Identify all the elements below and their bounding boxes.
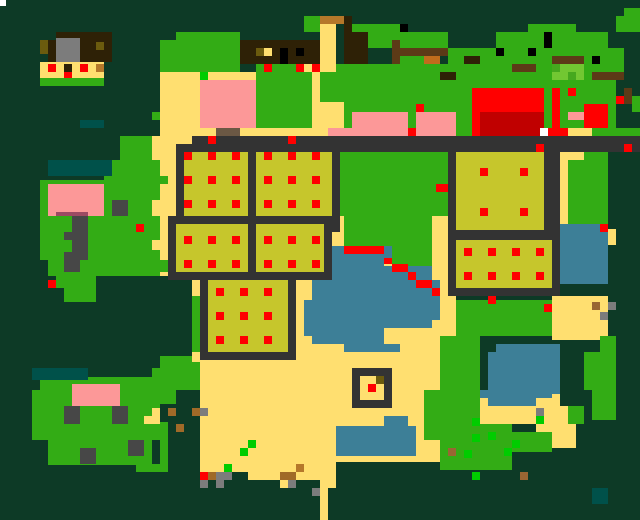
beach-central: [200, 352, 320, 472]
farm-plot-e-crop-dot: [240, 288, 248, 296]
islet-door: [64, 64, 72, 72]
grass-top-right: [496, 32, 608, 48]
wood-block: [440, 72, 456, 80]
driftwood: [592, 302, 600, 310]
farm-plot-c-crop-dot: [232, 236, 240, 244]
tree-trunk: [496, 48, 504, 56]
island-map[interactable]: [0, 0, 640, 520]
farm-plot-b-crop-dot: [312, 152, 320, 160]
farm-plot-c-crop-dot: [208, 236, 216, 244]
sand-nw: [160, 72, 200, 136]
farm-plot-c-crop-dot: [184, 236, 192, 244]
wood-fence: [512, 64, 536, 72]
farm-plot-r2-crop-dot: [488, 248, 496, 256]
pink-building-n1: [352, 112, 408, 136]
islet-house-wall: [40, 40, 48, 54]
beach-flower: [200, 472, 208, 480]
red-market-roof-dark: [480, 112, 544, 128]
totem-base: [64, 260, 80, 272]
lake-south: [384, 416, 408, 426]
farm-plot-e-crop-dot: [264, 312, 272, 320]
lake-red-shore: [600, 224, 608, 232]
farm-plot-e-crop-dot: [216, 312, 224, 320]
beach-plant: [464, 450, 472, 458]
beach-plant: [472, 472, 480, 480]
grass-east-blob: [584, 352, 616, 390]
red-stand-column: [472, 88, 480, 128]
stone: [312, 488, 320, 496]
farm-plot-r2-crop-dot: [488, 272, 496, 280]
farm-plot-e-crop-dot: [216, 336, 224, 344]
building-door-mat: [264, 64, 272, 72]
grass-below-plots: [472, 300, 552, 336]
lake-central: [432, 280, 440, 320]
grass-pixel: [160, 176, 168, 184]
lake-east: [560, 224, 608, 284]
red-market-roof: [480, 88, 544, 112]
farm-plot-r2-crop-dot: [536, 272, 544, 280]
beach-plant: [472, 418, 480, 426]
farm-plot-d-crop-dot: [312, 236, 320, 244]
wood-post: [392, 40, 400, 64]
islet-flower: [48, 64, 56, 72]
islet-house-wall: [48, 40, 56, 62]
farm-plot-r2-crop-dot: [464, 272, 472, 280]
stall-roof: [216, 128, 240, 136]
grass-ne-corner: [616, 16, 640, 32]
grass-pixel: [152, 368, 160, 378]
islet-flower: [80, 64, 88, 72]
sand-pixel: [144, 416, 160, 424]
lake-se: [488, 398, 536, 406]
farm-plot-d-crop-dot: [288, 260, 296, 268]
red-banner: [552, 88, 560, 128]
tree-trunk: [592, 56, 600, 64]
farm-plot-b-crop-dot: [288, 152, 296, 160]
farm-plot-a-crop-dot: [232, 152, 240, 160]
lake-se: [488, 352, 496, 390]
farm-plot-d-crop-dot: [264, 236, 272, 244]
beach-plant: [200, 72, 208, 80]
lake-red-shore: [416, 280, 432, 288]
farm-plot-a-crop-dot: [208, 152, 216, 160]
flower: [416, 104, 424, 112]
beach-plant: [224, 464, 232, 472]
stone: [216, 472, 232, 480]
driftwood: [208, 472, 216, 480]
driftwood: [280, 472, 296, 480]
islet-grass: [40, 78, 104, 86]
stone: [536, 408, 544, 416]
white-pixel: [540, 128, 548, 136]
deep-water-patch: [80, 120, 104, 128]
grass-se: [568, 406, 584, 424]
grass-se: [480, 424, 512, 470]
sand-nw: [200, 72, 256, 80]
farm-plot-b-crop-dot: [288, 176, 296, 184]
wood-post: [624, 88, 632, 104]
grass-south-strip: [160, 422, 168, 472]
grass-top-edge: [176, 32, 240, 40]
driftwood: [176, 424, 184, 432]
rock: [112, 200, 128, 216]
grass-south: [160, 390, 176, 404]
deep-water-patch: [592, 488, 608, 504]
rock: [112, 406, 128, 424]
grass-pixel: [160, 260, 168, 272]
rock: [80, 448, 96, 464]
building-door-mat: [312, 64, 320, 72]
town-path: [320, 24, 336, 72]
driftwood: [520, 472, 528, 480]
driftwood: [296, 464, 304, 472]
farm-plot-a-crop-dot: [232, 176, 240, 184]
beach-plant: [536, 416, 544, 424]
grass-path-side: [320, 72, 352, 102]
building-door-mat: [296, 64, 304, 72]
farm-plot-b-crop-dot: [312, 176, 320, 184]
red-stall: [584, 104, 608, 128]
lake-red-shore: [344, 246, 384, 254]
shadow-pixel: [384, 48, 392, 64]
flower: [616, 96, 624, 104]
stone: [200, 408, 208, 416]
garden-pixel: [552, 64, 560, 72]
lake-se: [480, 390, 552, 398]
tree-trunk: [528, 48, 536, 56]
islet-house-chimney: [56, 38, 80, 62]
farm-plot-e-crop-dot: [240, 336, 248, 344]
farm-plot-d-crop-dot: [312, 260, 320, 268]
lake-central: [344, 344, 400, 352]
grass-ne: [608, 80, 616, 128]
town-building: [344, 32, 368, 64]
farm-plot-e-crop-dot: [264, 288, 272, 296]
west-peninsula: [56, 274, 96, 288]
stone: [216, 480, 224, 488]
wood-fence: [400, 48, 448, 56]
wood-fence: [552, 56, 584, 64]
farm-plot-b-crop-dot: [264, 152, 272, 160]
farm-plot-a-crop-dot: [232, 200, 240, 208]
sand-pixel: [304, 64, 312, 72]
farm-plot-a-crop-dot: [208, 200, 216, 208]
crate: [424, 56, 440, 64]
islet-window: [96, 42, 104, 50]
farm-plot-e-crop-dot: [264, 336, 272, 344]
farm-plot-b-crop-dot: [264, 176, 272, 184]
lake-red-shore: [408, 272, 416, 280]
grass-top-right: [528, 24, 576, 32]
farm-plot-r2-crop-dot: [464, 248, 472, 256]
beach-tongue: [320, 488, 328, 520]
sand-strip: [568, 128, 592, 136]
flower: [568, 88, 576, 96]
farm-plot-b-crop-dot: [264, 200, 272, 208]
grass-se: [592, 390, 616, 420]
building-window: [264, 48, 272, 56]
deep-water-patch: [48, 160, 112, 176]
farm-plot-r2-crop-dot: [512, 272, 520, 280]
grass-strip-west-plots: [192, 296, 200, 352]
building-window: [296, 48, 304, 56]
farm-plot-a-crop-dot: [184, 152, 192, 160]
flower: [544, 304, 552, 312]
wood-block: [464, 56, 480, 64]
rock: [128, 440, 144, 456]
road-item: [536, 144, 544, 152]
lake-red-shore: [432, 288, 440, 296]
beach-tongue: [320, 462, 336, 488]
farm-plot-c-crop-dot: [208, 260, 216, 268]
building-door: [280, 48, 288, 64]
farm-plot-r1-field: [456, 152, 544, 240]
road-item: [624, 144, 632, 152]
farm-plot-a-crop-dot: [184, 200, 192, 208]
flower: [408, 128, 416, 136]
west-peninsula: [64, 288, 96, 302]
flower: [48, 280, 56, 288]
rock: [64, 406, 80, 424]
pink-building-sw: [72, 384, 120, 406]
path-top: [320, 16, 344, 24]
lake-central: [384, 246, 392, 258]
stone: [200, 480, 208, 488]
stone: [608, 302, 616, 310]
sand-pixel: [152, 136, 160, 160]
lake-se: [496, 344, 560, 390]
farm-plot-r1-crop-dot: [480, 208, 488, 216]
grass-se-blob: [440, 336, 480, 390]
corner-pixel: [0, 0, 6, 6]
sand-column: [312, 64, 320, 128]
farm-plot-b-crop-dot: [288, 200, 296, 208]
flower: [136, 224, 144, 232]
sand-pixel: [152, 200, 160, 216]
grass-pixel: [152, 112, 160, 120]
grass-se-blob: [424, 390, 480, 440]
grass-sw-lobe: [136, 464, 160, 472]
road-item: [288, 136, 296, 144]
farm-plot-e-crop-dot: [240, 312, 248, 320]
pink-building-nw: [200, 80, 256, 128]
lake-red-shore: [384, 258, 392, 264]
farm-plot-r1-border: [448, 152, 456, 240]
beach-plant: [512, 440, 520, 448]
grass-center: [256, 64, 312, 130]
town-building: [288, 40, 320, 64]
farm-plot-r1-crop-dot: [520, 168, 528, 176]
beach-plant: [472, 434, 480, 442]
driftwood: [192, 408, 200, 416]
totem-arm: [64, 232, 72, 240]
farm-plot-d-crop-dot: [288, 236, 296, 244]
grass-ne-row: [592, 128, 640, 136]
pink-building-n2: [416, 112, 456, 136]
garden-pixel: [568, 72, 576, 80]
farm-plot-e-crop-dot: [216, 288, 224, 296]
driftwood: [168, 408, 176, 416]
farm-plot-a-crop-dot: [184, 176, 192, 184]
beach-plant: [240, 448, 248, 456]
flower: [472, 128, 480, 136]
pink-pixel: [568, 112, 584, 120]
shrine-accent: [376, 376, 384, 384]
road-item: [208, 136, 216, 144]
pink-awning: [328, 128, 352, 136]
farm-plot-r2-crop-dot: [512, 248, 520, 256]
beach-plant: [488, 432, 496, 440]
sand-pixel: [152, 240, 160, 250]
grass-top-mid: [400, 32, 448, 48]
grass-ne: [632, 96, 640, 112]
totem-base: [64, 252, 80, 260]
driftwood: [448, 448, 456, 456]
shrine-crop-dot: [368, 384, 376, 392]
tree-trunk: [400, 24, 408, 32]
farm-plot-r2-crop-dot: [536, 248, 544, 256]
sand-pixel: [280, 480, 288, 488]
beach-plant: [504, 448, 512, 456]
deep-water-patch: [32, 368, 88, 380]
farm-plot-r1-crop-dot: [480, 168, 488, 176]
grass-east-mid-blob: [584, 152, 608, 160]
grass-se-blob: [440, 440, 480, 470]
sand-pixel: [152, 408, 160, 416]
stone: [600, 312, 608, 320]
beach-plant: [248, 440, 256, 448]
grass-east-blob: [600, 336, 616, 352]
farm-plot-c-crop-dot: [184, 260, 192, 268]
farm-plot-d-crop-dot: [264, 260, 272, 268]
farm-plot-a-field: [184, 152, 248, 224]
tree-cluster: [304, 16, 320, 32]
building-window: [256, 48, 264, 56]
wood-fence: [592, 72, 624, 80]
tree-trunk: [544, 32, 552, 48]
farm-plot-r1-border: [544, 152, 560, 240]
grass-patch: [400, 56, 424, 64]
grass-upper-left: [160, 40, 240, 72]
town-building: [344, 16, 352, 32]
islet-crate: [96, 64, 104, 72]
lake-red-shore: [392, 264, 408, 272]
stone: [288, 480, 296, 488]
red-strip: [548, 128, 568, 136]
farm-plot-b-crop-dot: [312, 200, 320, 208]
grass-east-mid-blob: [568, 160, 608, 230]
grass-ne-corner: [624, 8, 640, 16]
red-market-roof-dark: [480, 128, 540, 136]
sand-pixel: [608, 229, 616, 245]
farm-plot-a-crop-dot: [208, 176, 216, 184]
grass-mid-east: [336, 152, 448, 216]
farm-plot-r1-crop-dot: [520, 208, 528, 216]
farm-plot-b-field: [256, 152, 332, 224]
grass-mid-east: [344, 216, 432, 246]
lake-south: [336, 426, 416, 456]
farm-plot-c-crop-dot: [232, 260, 240, 268]
lake-se: [552, 390, 560, 394]
lake-central: [304, 300, 312, 336]
